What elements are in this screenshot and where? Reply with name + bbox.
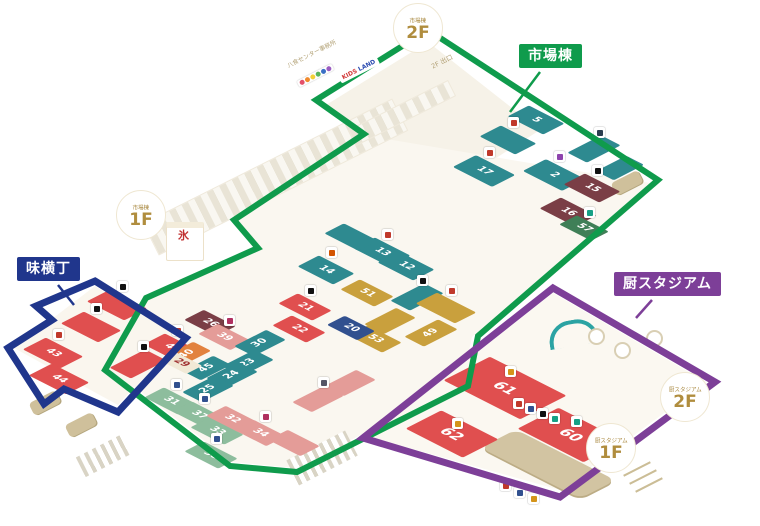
stall-layer: 5217151657131214514953202122263946403023…: [0, 0, 760, 526]
shop-logo-sign: [318, 377, 329, 388]
badge-floor-label: 2F: [406, 25, 429, 42]
shop-logo-sign: [138, 341, 149, 352]
stall-number: 14: [315, 265, 336, 276]
badge-floor-label: 1F: [129, 212, 152, 229]
stall-number: 38: [200, 450, 221, 461]
region-tag-ajiyokocho: 味横丁: [17, 257, 80, 281]
shop-logo-sign: [452, 418, 463, 429]
stall-number: 20: [340, 323, 361, 334]
shop-logo-sign: [505, 366, 516, 377]
stall-51: 51: [340, 279, 393, 306]
shop-logo-sign: [446, 285, 457, 296]
stall-number: 49: [420, 328, 441, 339]
stall: [109, 349, 166, 378]
shop-logo-sign: [305, 285, 316, 296]
stall: [567, 135, 620, 162]
stall-number: 24: [221, 370, 242, 381]
shop-logo-sign: [199, 393, 210, 404]
badge-floor-label: 2F: [673, 394, 696, 411]
shop-logo-sign: [417, 275, 428, 286]
stall-49: 49: [404, 319, 457, 346]
stall-number: 44: [48, 374, 69, 385]
stall-57: 57: [559, 215, 609, 240]
shop-logo-sign: [224, 315, 235, 326]
badge-kuriya-1f: 厨スタジアム 1F: [586, 423, 636, 473]
stall: [596, 156, 644, 181]
badge-building-label: 厨スタジアム: [669, 384, 702, 393]
shop-logo-sign: [571, 416, 582, 427]
stall-number: 34: [249, 428, 270, 439]
shop-logo-sign: [549, 413, 560, 424]
shop-logo-sign: [508, 117, 519, 128]
map-annotation: 氷: [178, 230, 189, 241]
shop-logo-sign: [528, 493, 539, 504]
shop-logo-sign: [171, 379, 182, 390]
stall-14: 14: [297, 255, 354, 284]
market-floor-map: 5217151657131214514953202122263946403023…: [0, 0, 760, 526]
shop-logo-sign: [537, 408, 548, 419]
shop-logo-sign: [525, 403, 536, 414]
shop-logo-sign: [584, 207, 595, 218]
stall-number: 61: [489, 380, 521, 396]
stall-number: 2: [546, 171, 561, 179]
shop-logo-sign: [594, 127, 605, 138]
stall-number: 30: [249, 338, 270, 349]
stall-44: 44: [29, 364, 90, 395]
stall-38: 38: [184, 441, 237, 468]
shop-logo-sign: [260, 411, 271, 422]
stall-number: 29: [170, 358, 191, 369]
stall-number: 21: [294, 302, 315, 313]
shop-logo-sign: [514, 487, 525, 498]
region-tag-kuriya-stadium: 厨スタジアム: [614, 272, 721, 296]
stall-number: 53: [364, 334, 385, 345]
badge-building-label: 市場棟: [410, 15, 427, 24]
shop-logo-sign: [211, 433, 222, 444]
badge-building-label: 厨スタジアム: [595, 435, 628, 444]
stall: [61, 312, 122, 343]
stall-number: 12: [395, 261, 416, 272]
stall-number: 39: [213, 332, 234, 343]
shop-logo-sign: [91, 303, 102, 314]
shop-logo-sign: [500, 480, 511, 491]
badge-kuriya-2f: 厨スタジアム 2F: [660, 372, 710, 422]
shop-logo-sign: [513, 398, 524, 409]
stall-21: 21: [278, 293, 331, 320]
stall-number: 60: [555, 427, 587, 443]
stall-number: 5: [528, 116, 543, 124]
shop-logo-sign: [172, 325, 183, 336]
shop-logo-sign: [117, 281, 128, 292]
badge-floor-label: 1F: [599, 445, 622, 462]
stall-number: 51: [356, 288, 377, 299]
shop-logo-sign: [53, 329, 64, 340]
stall-number: 57: [573, 223, 594, 234]
shop-logo-sign: [382, 229, 393, 240]
shop-logo-sign: [326, 247, 337, 258]
shop-logo-sign: [554, 151, 565, 162]
region-tag-ichiba: 市場棟: [519, 44, 582, 68]
stall-number: 17: [473, 166, 494, 177]
badge-ichiba-1f: 市場棟 1F: [116, 190, 166, 240]
stall-17: 17: [453, 155, 515, 187]
badge-ichiba-2f: 市場棟 2F: [393, 3, 443, 53]
stall-number: 43: [42, 348, 63, 359]
shop-logo-sign: [484, 147, 495, 158]
stall-number: 22: [288, 324, 309, 335]
stall-number: 31: [160, 396, 181, 407]
shop-logo-sign: [592, 165, 603, 176]
stall-number: 32: [221, 414, 242, 425]
badge-building-label: 市場棟: [133, 202, 150, 211]
stall-number: 15: [581, 183, 602, 194]
